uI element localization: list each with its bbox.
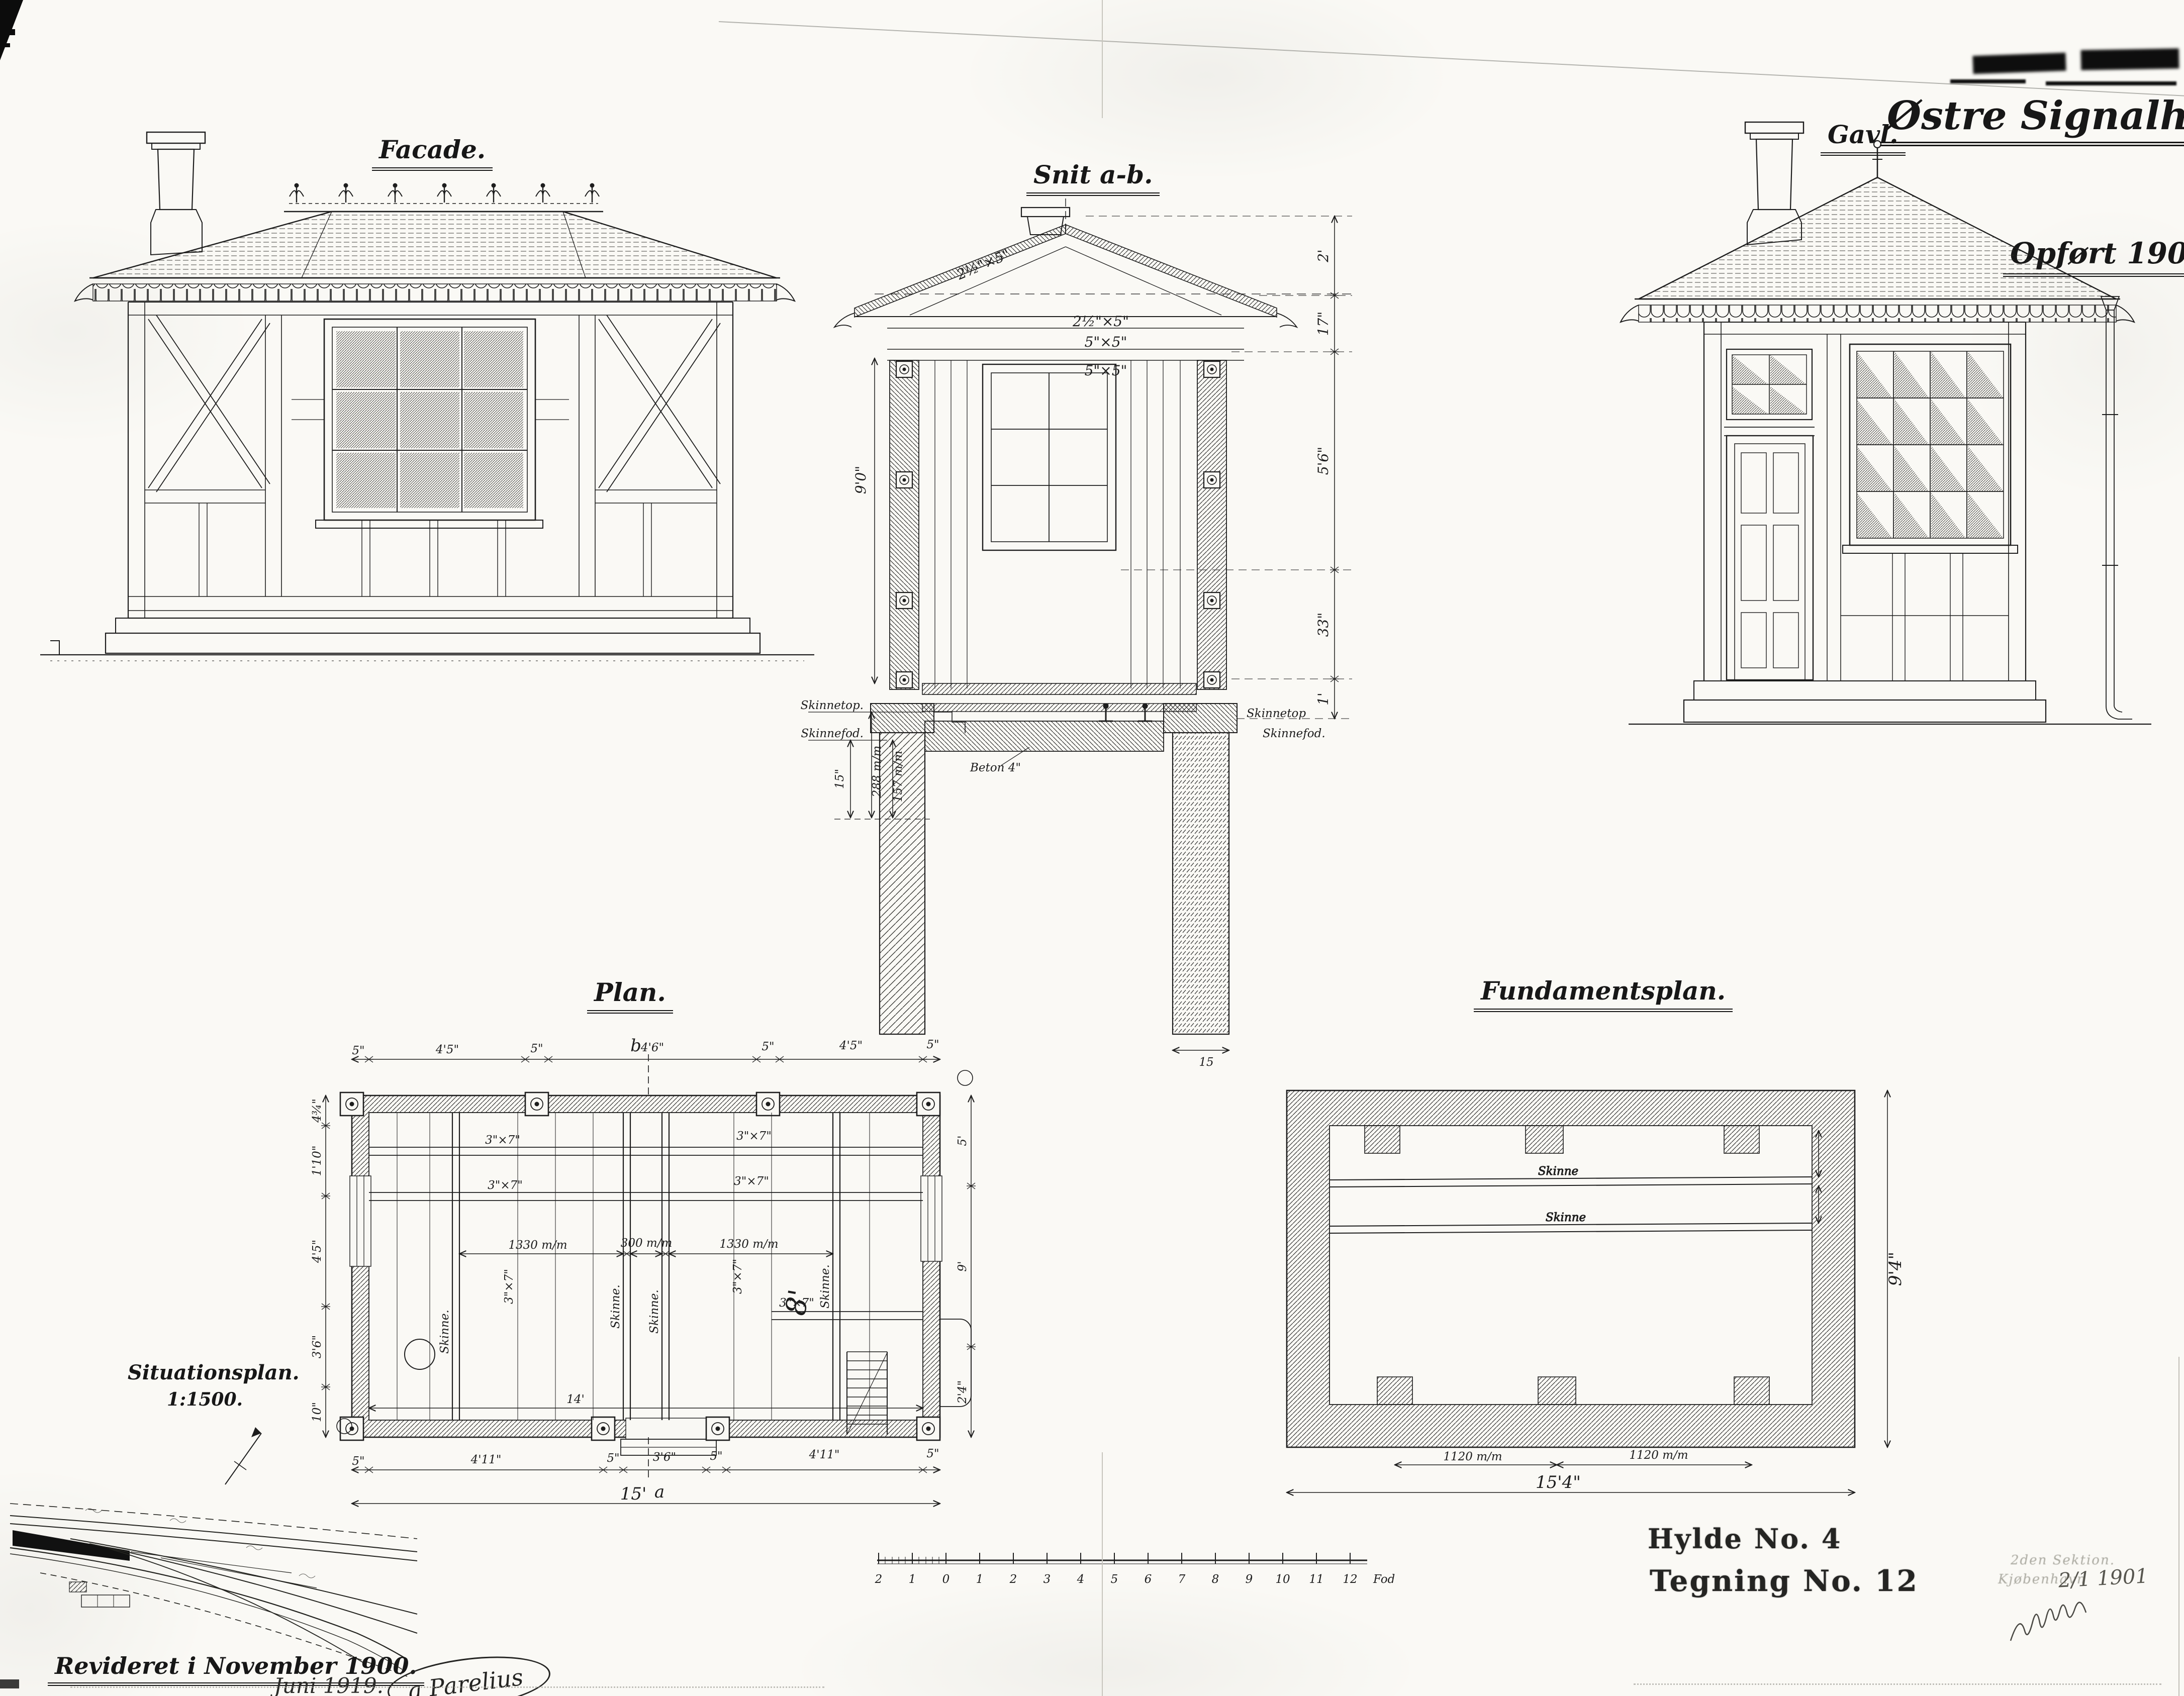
svg-text:5": 5" bbox=[926, 1038, 939, 1051]
svg-text:12: 12 bbox=[1343, 1573, 1357, 1586]
svg-text:5": 5" bbox=[607, 1452, 619, 1465]
svg-text:3"×7": 3"×7" bbox=[731, 1259, 744, 1294]
svg-text:Skinnefod.: Skinnefod. bbox=[801, 727, 864, 740]
svg-text:3"×7": 3"×7" bbox=[488, 1179, 523, 1192]
svg-text:4¾": 4¾" bbox=[311, 1099, 324, 1123]
svg-text:Skinne: Skinne bbox=[1546, 1211, 1586, 1224]
svg-text:15': 15' bbox=[620, 1484, 647, 1504]
foundation-view: Skinne Skinne 1120 m/m 1120 m/m 15'4" 9'… bbox=[1257, 1065, 1925, 1508]
revision-dots: . . . . . . bbox=[60, 1682, 175, 1696]
ink-smudge bbox=[2081, 48, 2179, 70]
edge-mark bbox=[0, 29, 15, 35]
dust-band bbox=[70, 1686, 824, 1688]
svg-text:2: 2 bbox=[875, 1573, 883, 1586]
edge-mark bbox=[0, 1679, 19, 1688]
gable-transom-window bbox=[1727, 349, 1812, 420]
svg-text:6: 6 bbox=[1145, 1573, 1152, 1586]
svg-text:4'11": 4'11" bbox=[470, 1453, 502, 1466]
svg-text:1: 1 bbox=[976, 1573, 984, 1586]
svg-text:5": 5" bbox=[926, 1447, 939, 1460]
svg-text:3'6": 3'6" bbox=[311, 1335, 324, 1358]
svg-text:Skinne.: Skinne. bbox=[819, 1264, 832, 1309]
situation-scale: 1:1500. bbox=[160, 1389, 250, 1413]
scale-bar: 2 1 0 1 2 3 4 5 6 7 8 9 10 11 12 Fod bbox=[865, 1538, 1417, 1593]
gable-window bbox=[1841, 344, 2018, 681]
svg-text:3"×7": 3"×7" bbox=[736, 1130, 772, 1143]
svg-text:3"×7": 3"×7" bbox=[734, 1175, 769, 1188]
svg-text:11: 11 bbox=[1309, 1573, 1323, 1586]
fold-crease-bottom bbox=[1102, 1452, 1103, 1696]
facade-plinth bbox=[40, 618, 814, 661]
svg-text:7: 7 bbox=[1178, 1573, 1186, 1586]
edge-mark bbox=[0, 43, 10, 47]
svg-text:a: a bbox=[654, 1482, 664, 1502]
svg-text:33": 33" bbox=[1315, 613, 1332, 637]
svg-text:Skinnefod.: Skinnefod. bbox=[1263, 727, 1325, 740]
svg-text:Skinnetop: Skinnetop bbox=[1247, 707, 1306, 720]
svg-text:9': 9' bbox=[956, 1261, 969, 1272]
svg-text:Beton 4": Beton 4" bbox=[970, 761, 1021, 774]
compass-arrow bbox=[225, 1427, 261, 1484]
svg-text:3"×7": 3"×7" bbox=[485, 1134, 520, 1147]
svg-text:5: 5 bbox=[1111, 1573, 1118, 1586]
signature-name: a Parelius bbox=[407, 1663, 525, 1696]
svg-text:1120 m/m: 1120 m/m bbox=[1629, 1449, 1688, 1462]
svg-text:4'11": 4'11" bbox=[809, 1448, 840, 1461]
foundation-title: Fundamentsplan. bbox=[1474, 976, 1733, 1012]
svg-text:2'4": 2'4" bbox=[956, 1380, 969, 1404]
svg-text:Skinne.: Skinne. bbox=[648, 1289, 661, 1334]
svg-text:1330 m/m: 1330 m/m bbox=[508, 1239, 567, 1252]
ink-smudge-underline bbox=[1950, 79, 2026, 83]
svg-text:Fod: Fod bbox=[1373, 1573, 1395, 1586]
plan-dim-right: 5' 9' 2'4" bbox=[956, 1095, 976, 1437]
stamp-line-1: 2den Sektion. bbox=[2011, 1553, 2115, 1568]
svg-text:1': 1' bbox=[1315, 692, 1332, 706]
facade-window bbox=[316, 319, 543, 528]
svg-text:10": 10" bbox=[311, 1402, 324, 1422]
ink-smudge bbox=[1972, 53, 2066, 74]
stamp-signature-squiggle bbox=[2006, 1606, 2116, 1651]
svg-text:9'4": 9'4" bbox=[1885, 1252, 1906, 1286]
svg-text:8: 8 bbox=[1212, 1573, 1219, 1586]
fold-crease-top bbox=[1102, 0, 1103, 118]
dust-band bbox=[1634, 1683, 2161, 1685]
plan-rails bbox=[452, 1113, 840, 1420]
svg-text:5": 5" bbox=[710, 1450, 722, 1463]
svg-text:5"×5": 5"×5" bbox=[1085, 334, 1127, 350]
section-view: 2½"×5" 2½"×5" 5"×5" 5"×5" 9'0" bbox=[804, 198, 1387, 1073]
svg-text:288 m/m: 288 m/m bbox=[871, 746, 884, 798]
svg-text:Skinne.: Skinne. bbox=[438, 1310, 451, 1354]
section-title: Snit a-b. bbox=[1026, 160, 1160, 196]
svg-text:Skinnetop.: Skinnetop. bbox=[801, 699, 864, 712]
gable-plinth bbox=[1629, 681, 2151, 724]
svg-text:5'6": 5'6" bbox=[1315, 447, 1332, 475]
svg-text:4'6": 4'6" bbox=[640, 1041, 664, 1054]
svg-text:b: b bbox=[630, 1036, 641, 1056]
svg-text:4'5": 4'5" bbox=[839, 1039, 863, 1052]
svg-text:300 m/m: 300 m/m bbox=[621, 1237, 673, 1250]
foundation-ring bbox=[1287, 1090, 1855, 1447]
scratch-line bbox=[719, 21, 2184, 96]
svg-text:1120 m/m: 1120 m/m bbox=[1443, 1450, 1502, 1463]
facade-ridge-cresting bbox=[284, 183, 603, 212]
svg-text:2': 2' bbox=[1315, 249, 1332, 263]
ink-smudge-underline bbox=[2046, 81, 2176, 85]
shelf-number: Hylde No. 4 bbox=[1648, 1523, 1842, 1555]
svg-text:157 m/m: 157 m/m bbox=[892, 751, 905, 803]
svg-text:5": 5" bbox=[762, 1040, 774, 1053]
gable-view bbox=[1598, 113, 2181, 791]
facade-chimney bbox=[147, 132, 205, 255]
railway-tracks bbox=[10, 1504, 417, 1676]
svg-text:10: 10 bbox=[1275, 1573, 1290, 1586]
svg-text:Skinne.: Skinne. bbox=[609, 1284, 622, 1329]
svg-text:3'6": 3'6" bbox=[653, 1451, 676, 1464]
svg-text:4'5": 4'5" bbox=[311, 1240, 324, 1263]
svg-text:Skinne: Skinne bbox=[1538, 1165, 1578, 1178]
svg-text:5": 5" bbox=[530, 1042, 543, 1055]
facade-roof bbox=[75, 212, 795, 301]
svg-text:2½"×5": 2½"×5" bbox=[1072, 313, 1129, 330]
svg-text:1: 1 bbox=[909, 1573, 916, 1586]
svg-text:9: 9 bbox=[1246, 1573, 1253, 1586]
scale-ticks bbox=[879, 1553, 1350, 1564]
scale-numbers: 2 1 0 1 2 3 4 5 6 7 8 9 10 11 12 Fod bbox=[875, 1573, 1395, 1586]
plan-dim-top: 5" 4'5" 5" 4'6" 5" 4'5" 5" bbox=[352, 1038, 940, 1062]
svg-text:14': 14' bbox=[566, 1393, 585, 1406]
svg-text:2: 2 bbox=[1009, 1573, 1017, 1586]
stamp-date: 2/1 1901 bbox=[2058, 1564, 2149, 1592]
plan-dim-left: 4¾" 1'10" 4'5" 3'6" 10" bbox=[311, 1095, 330, 1437]
gable-finial bbox=[1872, 141, 1882, 177]
svg-text:8': 8' bbox=[779, 1287, 816, 1318]
svg-text:17": 17" bbox=[1315, 312, 1332, 336]
drawing-sheet: Østre Signalhus. Opført 1900. Facade. Sn… bbox=[0, 0, 2184, 1696]
drawing-number: Tegning No. 12 bbox=[1650, 1564, 1919, 1598]
revision-note-2: Juni 1919. bbox=[274, 1673, 384, 1696]
svg-text:5': 5' bbox=[956, 1136, 969, 1146]
svg-text:4: 4 bbox=[1077, 1573, 1085, 1586]
svg-text:15'4": 15'4" bbox=[1536, 1472, 1581, 1492]
svg-text:15": 15" bbox=[833, 769, 846, 789]
gable-downpipe bbox=[2101, 296, 2132, 719]
plan-title: Plan. bbox=[587, 977, 673, 1014]
gable-door bbox=[1724, 427, 1815, 680]
gable-roof bbox=[1621, 177, 2134, 322]
plan-interior: 3"×7" 3"×7" 3"×7" 3"×7" 3"×7" 3"×7" 3"×7… bbox=[369, 1113, 971, 1435]
svg-text:9'0": 9'0" bbox=[852, 466, 869, 494]
edge-line bbox=[2178, 1357, 2179, 1696]
svg-text:3: 3 bbox=[1043, 1573, 1051, 1586]
section-walls: 9'0" bbox=[852, 358, 1226, 689]
svg-text:15: 15 bbox=[1199, 1056, 1213, 1069]
section-floor-foundation: Beton 4" Skinnetop. Skinnefod. 15" 288 m… bbox=[801, 683, 1325, 1069]
facade-view bbox=[30, 118, 824, 681]
svg-text:1330 m/m: 1330 m/m bbox=[719, 1238, 778, 1251]
svg-text:0: 0 bbox=[942, 1573, 950, 1586]
plan-dim-bottom: 5" 4'11" 5" 3'6" 5" 4'11" 5" 15' bbox=[352, 1447, 940, 1504]
svg-text:5": 5" bbox=[352, 1044, 364, 1057]
svg-text:2½"×5": 2½"×5" bbox=[954, 246, 1012, 283]
svg-text:3"×7": 3"×7" bbox=[503, 1269, 516, 1304]
svg-text:1'10": 1'10" bbox=[311, 1146, 324, 1176]
svg-text:4'5": 4'5" bbox=[435, 1043, 459, 1056]
situation-title: Situationsplan. bbox=[121, 1361, 307, 1387]
